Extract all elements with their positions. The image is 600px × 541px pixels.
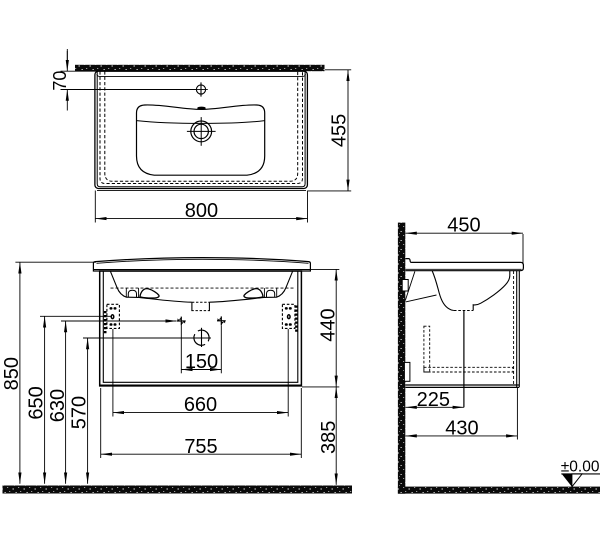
- svg-text:570: 570: [68, 396, 90, 429]
- svg-text:±0.00: ±0.00: [561, 459, 600, 476]
- svg-text:385: 385: [318, 421, 340, 454]
- svg-text:660: 660: [184, 394, 217, 416]
- svg-text:630: 630: [47, 389, 69, 422]
- svg-text:450: 450: [447, 214, 480, 236]
- svg-text:150: 150: [185, 351, 218, 373]
- svg-text:850: 850: [1, 357, 23, 390]
- svg-text:650: 650: [26, 386, 48, 419]
- svg-text:440: 440: [318, 308, 340, 341]
- svg-text:455: 455: [329, 114, 351, 147]
- svg-text:225: 225: [417, 389, 450, 411]
- svg-text:755: 755: [184, 436, 217, 458]
- svg-text:430: 430: [445, 417, 478, 439]
- svg-text:800: 800: [185, 200, 218, 222]
- svg-text:70: 70: [50, 71, 70, 91]
